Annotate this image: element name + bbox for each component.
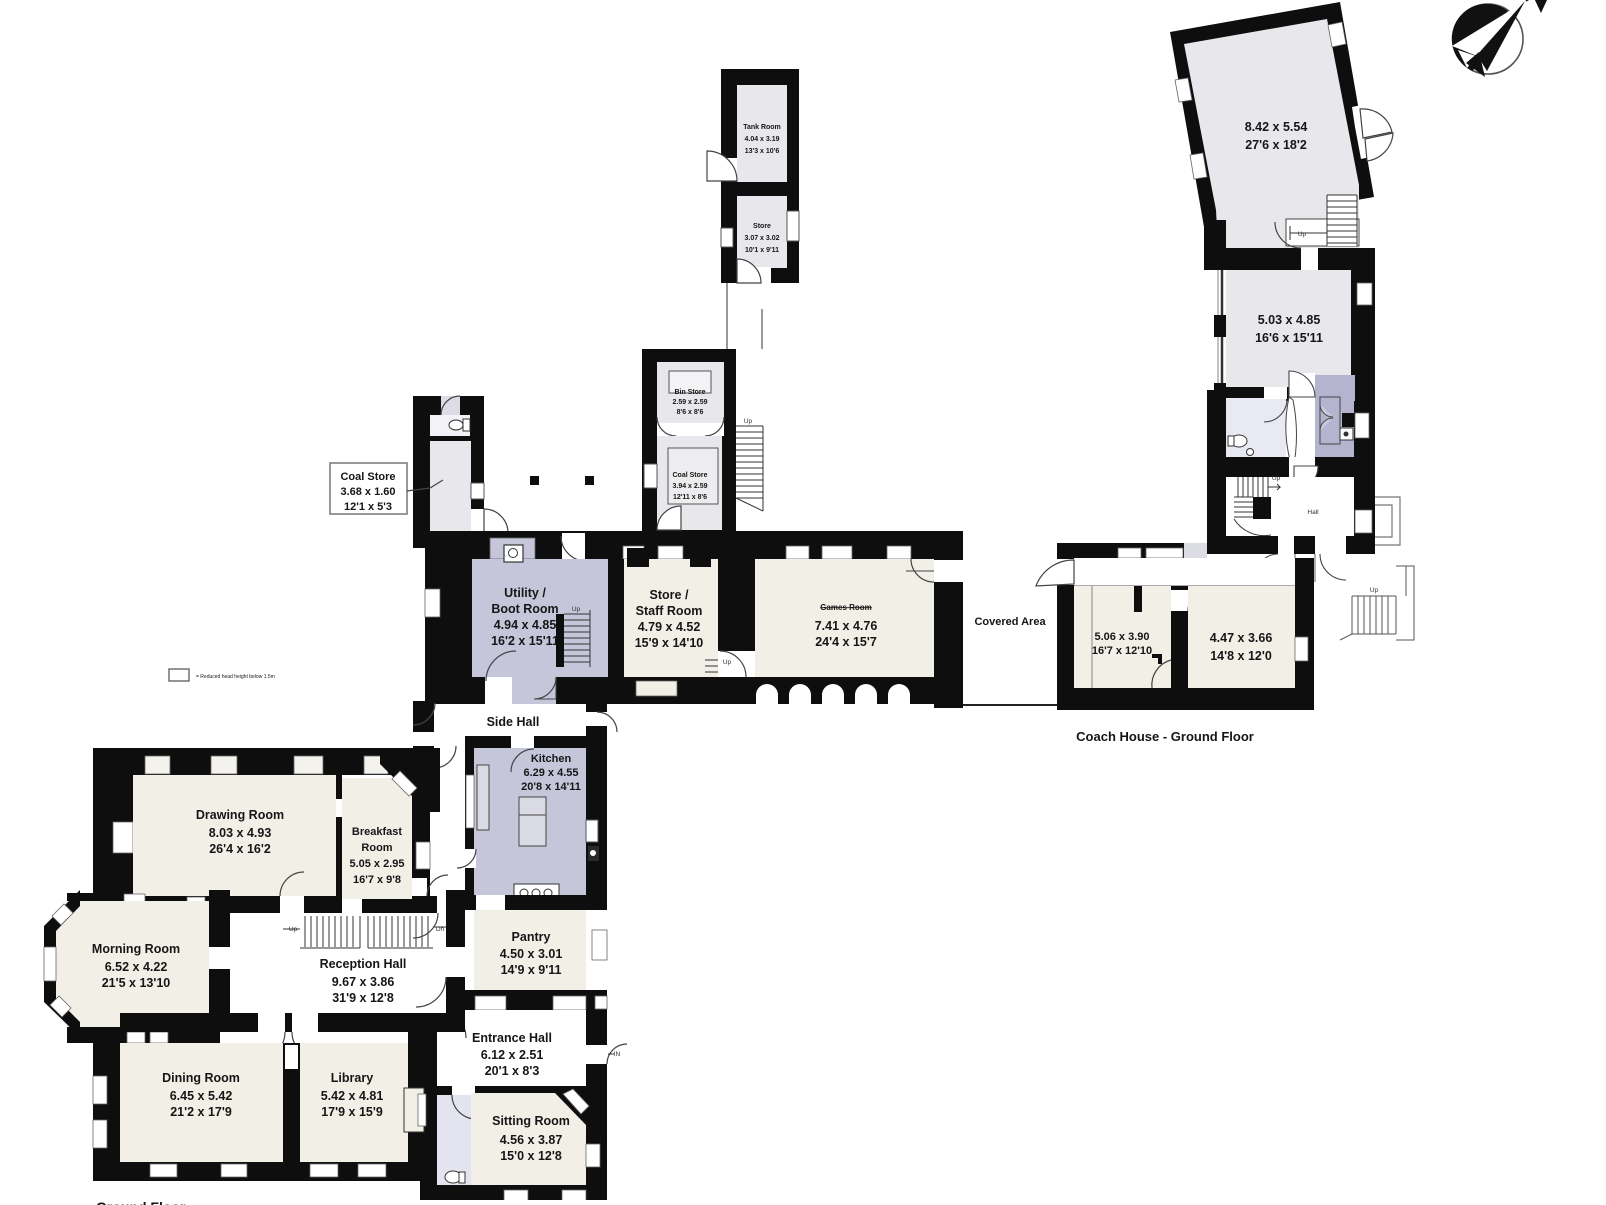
- svg-text:Up: Up: [1370, 587, 1379, 594]
- svg-text:Up: Up: [572, 606, 581, 613]
- svg-text:15'9 x 14'10: 15'9 x 14'10: [635, 636, 704, 650]
- svg-text:2.59 x 2.59: 2.59 x 2.59: [672, 399, 707, 406]
- svg-text:Store /: Store /: [650, 588, 689, 602]
- svg-text:Up: Up: [1272, 475, 1281, 482]
- svg-text:Covered Area: Covered Area: [974, 616, 1046, 628]
- svg-text:Pantry: Pantry: [512, 930, 551, 944]
- svg-text:3.68 x 1.60: 3.68 x 1.60: [340, 486, 395, 498]
- svg-text:Up: Up: [289, 926, 298, 933]
- svg-text:Room: Room: [361, 842, 392, 854]
- svg-text:14'9 x 9'11: 14'9 x 9'11: [501, 963, 562, 977]
- svg-text:17'9 x 15'9: 17'9 x 15'9: [321, 1105, 383, 1119]
- svg-text:Games Room: Games Room: [820, 603, 872, 612]
- svg-text:Up: Up: [723, 659, 732, 666]
- svg-text:13'3 x 10'6: 13'3 x 10'6: [745, 148, 780, 155]
- svg-text:Utility /: Utility /: [504, 586, 546, 600]
- svg-text:9.67 x 3.86: 9.67 x 3.86: [332, 975, 395, 989]
- svg-text:4.04 x 3.19: 4.04 x 3.19: [744, 136, 779, 143]
- svg-text:5.05 x 2.95: 5.05 x 2.95: [349, 858, 404, 870]
- svg-text:Kitchen: Kitchen: [531, 753, 572, 765]
- svg-text:3.07 x 3.02: 3.07 x 3.02: [744, 235, 779, 242]
- svg-text:Bin Store: Bin Store: [674, 389, 705, 396]
- svg-text:16'7 x 9'8: 16'7 x 9'8: [353, 874, 401, 886]
- svg-text:8.42 x 5.54: 8.42 x 5.54: [1245, 120, 1308, 134]
- svg-text:20'8 x 14'11: 20'8 x 14'11: [521, 781, 581, 793]
- svg-text:Entrance Hall: Entrance Hall: [472, 1031, 552, 1045]
- svg-text:4.94 x 4.85: 4.94 x 4.85: [494, 618, 557, 632]
- svg-text:Staff Room: Staff Room: [636, 604, 703, 618]
- svg-text:7.41 x 4.76: 7.41 x 4.76: [815, 619, 878, 633]
- svg-text:8.03 x 4.93: 8.03 x 4.93: [209, 826, 272, 840]
- svg-text:6.29 x 4.55: 6.29 x 4.55: [523, 767, 578, 779]
- svg-text:Hall: Hall: [1307, 509, 1319, 516]
- svg-text:8'6 x 8'6: 8'6 x 8'6: [677, 409, 704, 416]
- svg-text:27'6 x 18'2: 27'6 x 18'2: [1245, 138, 1307, 152]
- svg-text:21'2 x 17'9: 21'2 x 17'9: [170, 1105, 232, 1119]
- svg-text:4.56 x 3.87: 4.56 x 3.87: [500, 1133, 563, 1147]
- svg-text:12'1 x 5'3: 12'1 x 5'3: [344, 501, 392, 513]
- svg-text:Up: Up: [744, 418, 753, 425]
- svg-text:16'6 x 15'11: 16'6 x 15'11: [1255, 331, 1323, 345]
- svg-text:21'5 x 13'10: 21'5 x 13'10: [102, 976, 171, 990]
- svg-text:14'8 x 12'0: 14'8 x 12'0: [1210, 649, 1272, 663]
- svg-text:10'1 x 9'11: 10'1 x 9'11: [745, 247, 779, 254]
- svg-text:26'4 x 16'2: 26'4 x 16'2: [209, 842, 271, 856]
- svg-text:20'1 x 8'3: 20'1 x 8'3: [485, 1064, 540, 1078]
- svg-text:24'4 x 15'7: 24'4 x 15'7: [815, 635, 877, 649]
- svg-text:16'7 x 12'10: 16'7 x 12'10: [1092, 645, 1152, 657]
- svg-text:Coach House - Ground Floor: Coach House - Ground Floor: [1076, 729, 1254, 744]
- svg-text:Coal Store: Coal Store: [340, 471, 395, 483]
- svg-text:Sitting Room: Sitting Room: [492, 1114, 570, 1128]
- svg-text:4.47 x 3.66: 4.47 x 3.66: [1210, 631, 1273, 645]
- svg-text:Tank Room: Tank Room: [743, 124, 781, 131]
- svg-text:Dining Room: Dining Room: [162, 1071, 240, 1085]
- svg-text:16'2 x 15'11: 16'2 x 15'11: [491, 634, 559, 648]
- svg-text:Boot Room: Boot Room: [491, 602, 558, 616]
- svg-text:15'0 x 12'8: 15'0 x 12'8: [500, 1149, 562, 1163]
- svg-text:Side Hall: Side Hall: [487, 715, 540, 729]
- svg-text:5.42 x 4.81: 5.42 x 4.81: [321, 1089, 384, 1103]
- svg-text:Store: Store: [753, 223, 771, 230]
- svg-text:IN: IN: [614, 1051, 621, 1058]
- svg-text:Breakfast: Breakfast: [352, 826, 402, 838]
- svg-text:3.94 x 2.59: 3.94 x 2.59: [672, 483, 707, 490]
- svg-text:Reception Hall: Reception Hall: [320, 957, 407, 971]
- svg-text:Coal Store: Coal Store: [672, 472, 707, 479]
- svg-text:5.06 x 3.90: 5.06 x 3.90: [1094, 631, 1149, 643]
- svg-text:Library: Library: [331, 1071, 373, 1085]
- svg-text:Dn: Dn: [436, 926, 445, 933]
- svg-text:Ground Floor: Ground Floor: [96, 1199, 186, 1205]
- svg-text:6.12 x 2.51: 6.12 x 2.51: [481, 1048, 544, 1062]
- svg-text:5.03 x 4.85: 5.03 x 4.85: [1258, 313, 1321, 327]
- svg-text:6.52 x 4.22: 6.52 x 4.22: [105, 960, 168, 974]
- svg-text:4.79 x 4.52: 4.79 x 4.52: [638, 620, 701, 634]
- svg-text:= Reduced head height below 1.: = Reduced head height below 1.5m: [196, 674, 275, 680]
- svg-text:6.45 x 5.42: 6.45 x 5.42: [170, 1089, 233, 1103]
- svg-text:31'9 x 12'8: 31'9 x 12'8: [332, 991, 394, 1005]
- svg-text:4.50 x 3.01: 4.50 x 3.01: [500, 947, 563, 961]
- svg-text:12'11 x 8'6: 12'11 x 8'6: [673, 494, 707, 501]
- svg-text:Drawing Room: Drawing Room: [196, 808, 284, 822]
- svg-text:Morning Room: Morning Room: [92, 942, 180, 956]
- svg-text:Up: Up: [1298, 231, 1307, 238]
